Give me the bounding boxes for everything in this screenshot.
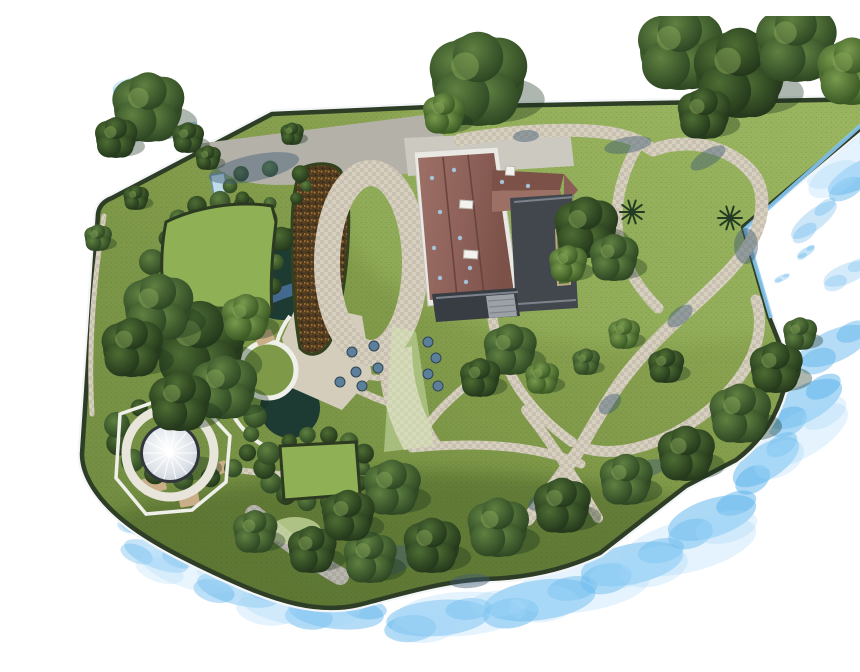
canopy-highlight [299,536,313,550]
roof-window-dot [464,280,468,284]
globe-bush [431,353,441,363]
canopy-highlight [432,102,444,114]
roof-window-dot [458,236,462,240]
canopy-highlight [356,543,371,558]
chimney [459,200,473,209]
globe-bush [335,377,345,387]
roof-window-dot [526,184,530,188]
roof-window-dot [438,210,442,214]
splash-blob [785,194,845,248]
canopy-highlight [334,501,349,516]
globe-bush [433,381,443,391]
canopy-highlight [791,324,801,334]
canopy-highlight [469,367,480,378]
roof-window-dot [500,180,504,184]
roof-window-dot [430,176,434,180]
splash-blob [795,243,818,261]
globe-bush [351,367,361,377]
globe-bush [357,381,367,391]
roof-window-dot [432,246,436,250]
shrub-blob [290,192,302,204]
canopy-highlight [179,129,188,138]
canopy-highlight [546,490,562,506]
site-plan-svg [40,16,860,656]
globe-bush [369,341,379,351]
canopy-highlight [416,530,432,546]
canopy-highlight [163,385,180,402]
canopy-highlight [762,353,777,368]
canopy-highlight [451,52,479,80]
canopy-highlight [723,397,740,414]
canopy-highlight [376,472,392,488]
dome-cap [166,449,174,457]
canopy-highlight [115,331,132,348]
canopy-highlight [496,335,511,350]
canopy-highlight [774,21,797,44]
canopy-highlight [481,511,498,528]
roof-window-dot [468,266,472,270]
canopy-highlight [615,325,624,334]
canopy-highlight [243,519,256,532]
canopy-highlight [558,253,569,264]
canopy-highlight [578,354,586,362]
chimney [505,166,515,176]
canopy-highlight [533,368,543,378]
shrub-blob [239,444,256,461]
shrub-blob [257,442,280,465]
canopy-highlight [657,26,681,50]
tree [783,317,823,350]
canopy-highlight [601,244,615,258]
canopy-highlight [690,99,705,114]
paving-shadow [734,228,758,264]
splash-blob [819,255,860,294]
canopy-highlight [612,465,627,480]
globe-bush [373,363,383,373]
canopy-highlight [201,151,208,158]
canopy-highlight [233,304,247,318]
shrub-blob [320,426,338,444]
shrub-blob [243,426,259,442]
canopy-highlight [129,191,136,198]
canopy-highlight [656,356,666,366]
canopy-highlight [90,230,98,238]
canopy-highlight [714,48,740,74]
roof-window-dot [438,276,442,280]
canopy-highlight [286,127,293,134]
canopy-highlight [833,52,853,72]
globe-bush [347,347,357,357]
shrub-blob [299,427,316,444]
globe-bush [423,369,433,379]
chimney [463,250,478,259]
shrub-blob [292,165,309,182]
canopy-highlight [569,210,587,228]
canopy-highlight [670,438,686,454]
canopy-highlight [104,126,116,138]
globe-bush [423,337,433,347]
landscape-plan-render [40,16,860,656]
canopy-highlight [139,288,159,308]
splash-blob [773,272,791,284]
roof-window-dot [452,168,456,172]
canopy-highlight [128,88,148,108]
